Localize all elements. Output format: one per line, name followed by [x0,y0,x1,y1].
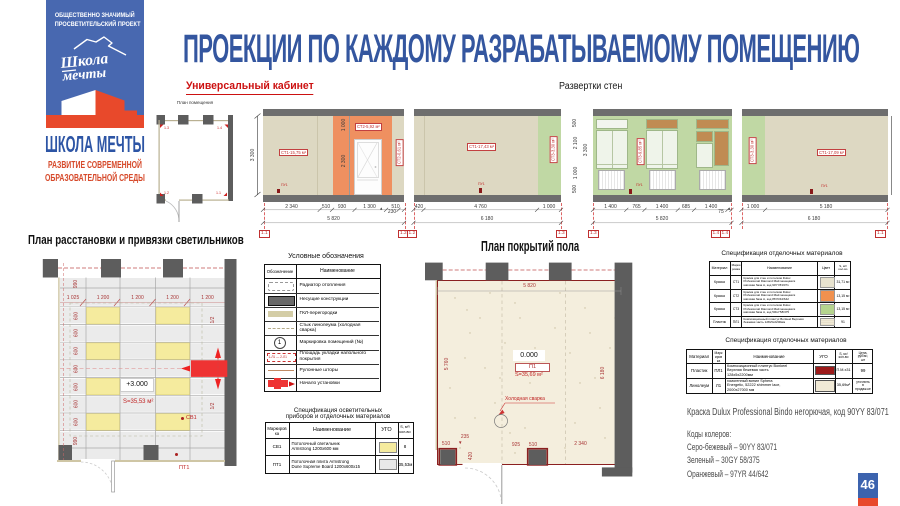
svg-text:1.1: 1.1 [216,191,221,195]
svg-text:мечты: мечты [61,66,107,85]
svg-text:1.3: 1.3 [164,126,169,130]
svg-text:1.2: 1.2 [164,191,169,195]
svg-text:1.4: 1.4 [217,126,222,130]
svg-text:План помещения: План помещения [177,100,214,105]
